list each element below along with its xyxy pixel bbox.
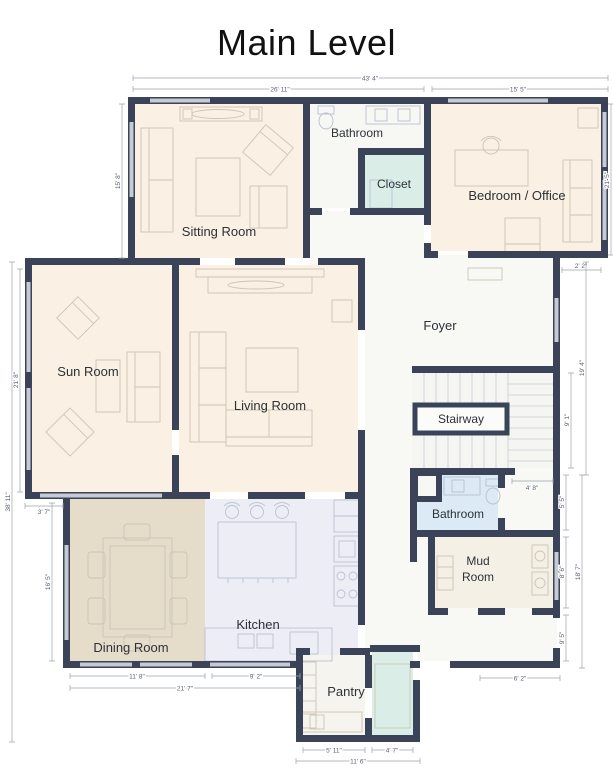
svg-text:15' 5": 15' 5" bbox=[510, 87, 527, 94]
room-label-dining-room: Dining Room bbox=[93, 640, 168, 655]
room-label-bathroom-top: Bathroom bbox=[331, 126, 383, 140]
dim-right-lower-overall: 18' 7" bbox=[575, 475, 585, 668]
svg-text:16' 5": 16' 5" bbox=[45, 573, 52, 590]
room-label-kitchen: Kitchen bbox=[236, 617, 279, 632]
dim-kitchen-width: 9' 2" bbox=[212, 673, 300, 681]
svg-text:21' 8": 21' 8" bbox=[13, 371, 20, 388]
room-label-pantry: Pantry bbox=[327, 684, 365, 699]
dim-left-step: 3' 7" bbox=[25, 503, 63, 516]
room-label-bathroom-lower: Bathroom bbox=[432, 507, 484, 521]
svg-text:19' 4": 19' 4" bbox=[579, 359, 586, 376]
room-label-bedroom-office: Bedroom / Office bbox=[468, 188, 565, 203]
dim-bottom-overall: 21' 7" bbox=[70, 685, 300, 693]
svg-text:43' 4": 43' 4" bbox=[362, 76, 379, 83]
room-label-sitting-room: Sitting Room bbox=[182, 224, 256, 239]
dim-pantry-left: 5' 11" bbox=[303, 747, 365, 755]
svg-text:5' 11": 5' 11" bbox=[326, 748, 342, 755]
floor-plan-page: Main Level bbox=[0, 0, 613, 768]
room-label-living-room: Living Room bbox=[234, 398, 306, 413]
svg-text:26' 11": 26' 11" bbox=[270, 87, 290, 94]
dim-right-step: 2' 2" bbox=[562, 263, 601, 273]
shower-enclosure bbox=[415, 473, 439, 499]
dim-dining-height: 16' 5" bbox=[45, 503, 55, 661]
dim-rear-width: 6' 2" bbox=[480, 675, 560, 683]
dim-stairway-height: 9' 1" bbox=[564, 373, 574, 468]
dim-bath-lower-height: 5' 5" bbox=[559, 475, 569, 530]
bedroom-office-floor bbox=[431, 104, 601, 251]
dim-left-overall: 38' 11" bbox=[5, 262, 15, 742]
dim-mud-room-height: 8' 6" bbox=[559, 537, 569, 608]
room-label-foyer: Foyer bbox=[423, 318, 457, 333]
dim-overall-width: 43' 4" bbox=[133, 75, 608, 83]
svg-text:9' 2": 9' 2" bbox=[250, 674, 263, 681]
dim-right-upper-overall: 19' 4" bbox=[579, 262, 589, 475]
pantry-right-floor bbox=[372, 652, 413, 735]
room-label-closet: Closet bbox=[377, 177, 412, 191]
room-label-mud-line1: Mud bbox=[466, 554, 489, 568]
living-room-floor bbox=[179, 265, 358, 492]
room-label-mud-line2: Room bbox=[462, 570, 494, 584]
svg-text:8' 6": 8' 6" bbox=[559, 565, 566, 578]
dim-dining-width: 11' 8" bbox=[70, 673, 205, 681]
svg-text:4' 8": 4' 8" bbox=[526, 485, 539, 492]
dim-top-right: 15' 5" bbox=[432, 86, 608, 94]
dim-sun-room-height: 21' 8" bbox=[13, 269, 23, 492]
floor-plan-drawing: Sitting Room Bathroom Closet Bedroom / O… bbox=[0, 0, 613, 768]
svg-text:21' 5": 21' 5" bbox=[604, 171, 611, 188]
dim-top-left: 26' 11" bbox=[133, 86, 424, 94]
room-label-sun-room: Sun Room bbox=[57, 364, 118, 379]
svg-text:9' 5": 9' 5" bbox=[559, 631, 566, 644]
svg-text:4' 7": 4' 7" bbox=[386, 748, 399, 755]
svg-text:15' 8": 15' 8" bbox=[115, 172, 122, 189]
dim-rear-right-height: 9' 5" bbox=[559, 615, 569, 661]
svg-text:6' 2": 6' 2" bbox=[514, 676, 527, 683]
dim-sitting-height: 15' 8" bbox=[115, 104, 125, 258]
svg-text:38' 11": 38' 11" bbox=[5, 492, 12, 512]
svg-text:11' 6": 11' 6" bbox=[350, 759, 366, 766]
svg-text:5' 5": 5' 5" bbox=[559, 495, 566, 508]
svg-text:21' 7": 21' 7" bbox=[177, 686, 194, 693]
room-label-stairway: Stairway bbox=[438, 412, 484, 426]
dim-pantry-right: 4' 7" bbox=[372, 747, 413, 755]
svg-text:3' 7": 3' 7" bbox=[38, 509, 51, 516]
svg-text:11' 8": 11' 8" bbox=[129, 674, 145, 681]
svg-text:9' 1": 9' 1" bbox=[564, 413, 571, 426]
dim-pantry-overall: 11' 6" bbox=[296, 758, 420, 766]
svg-text:18' 7": 18' 7" bbox=[575, 563, 582, 580]
